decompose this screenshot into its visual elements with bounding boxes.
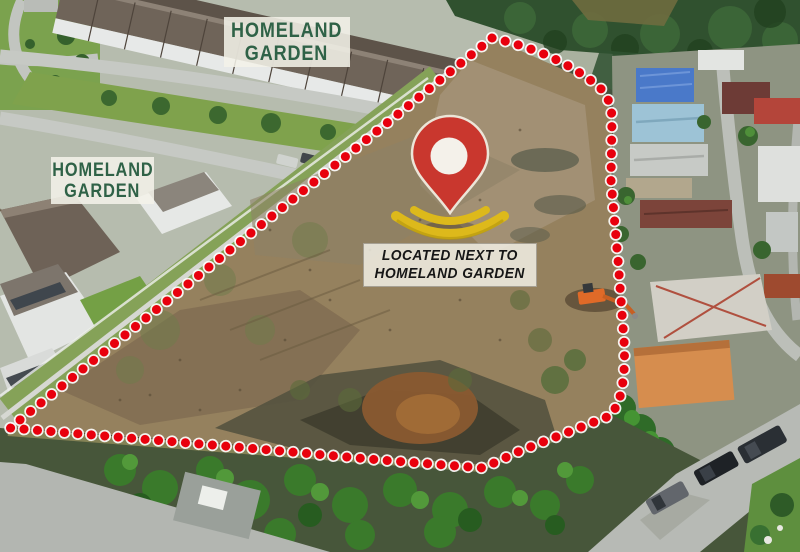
estate-label-top-line1: HOMELAND [231, 19, 342, 42]
estate-label-left-line1: HOMELAND [52, 160, 153, 181]
location-caption-line2: HOMELAND GARDEN [375, 265, 525, 283]
location-caption: LOCATED NEXT TO HOMELAND GARDEN [363, 243, 537, 287]
location-caption-line1: LOCATED NEXT TO [382, 247, 518, 265]
estate-label-left-line2: GARDEN [65, 181, 141, 202]
estate-label-top-line2: GARDEN [245, 42, 328, 65]
estate-label-left: HOMELAND GARDEN [51, 157, 154, 204]
aerial-photo: HOMELAND GARDEN HOMELAND GARDEN LOCATED … [0, 0, 800, 552]
estate-label-top: HOMELAND GARDEN [224, 17, 350, 67]
